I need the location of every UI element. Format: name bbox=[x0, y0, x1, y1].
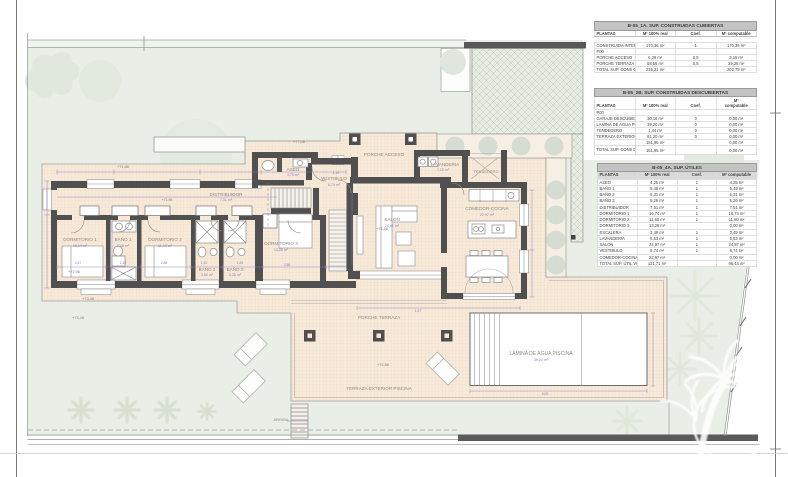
svg-text:BAÑO 1: BAÑO 1 bbox=[115, 236, 132, 242]
svg-text:1,16: 1,16 bbox=[333, 171, 340, 175]
svg-text:PORCHE TERRAZA: PORCHE TERRAZA bbox=[358, 315, 401, 320]
svg-text:3,50 m²: 3,50 m² bbox=[201, 273, 214, 277]
svg-text:DORMITORIO 2: DORMITORIO 2 bbox=[148, 237, 182, 242]
svg-text:1,40: 1,40 bbox=[120, 261, 127, 265]
svg-text:+73,48: +73,48 bbox=[82, 297, 94, 301]
svg-text:+73,48: +73,48 bbox=[72, 316, 84, 320]
svg-text:2,56: 2,56 bbox=[284, 263, 291, 267]
svg-text:22,97 m²: 22,97 m² bbox=[480, 213, 495, 217]
svg-text:7,15 m²: 7,15 m² bbox=[437, 168, 450, 172]
svg-text:SALON: SALON bbox=[384, 217, 400, 222]
svg-text:3,28 m²: 3,28 m² bbox=[229, 273, 242, 277]
svg-text:3,48 m²: 3,48 m² bbox=[117, 244, 130, 248]
svg-text:1,67: 1,67 bbox=[415, 309, 422, 313]
svg-text:+71,88: +71,88 bbox=[117, 165, 129, 169]
svg-text:DISTRIBUIDOR: DISTRIBUIDOR bbox=[210, 192, 244, 197]
svg-text:8,74 m²: 8,74 m² bbox=[328, 183, 341, 187]
svg-text:ASEO: ASEO bbox=[287, 167, 300, 172]
svg-text:ARRIBA: ARRIBA bbox=[274, 417, 289, 422]
svg-text:VESTIBULO: VESTIBULO bbox=[321, 176, 347, 181]
svg-text:PORCHE ACCESO: PORCHE ACCESO bbox=[364, 152, 405, 157]
svg-text:5,00: 5,00 bbox=[542, 392, 549, 396]
svg-text:TERRAZA EXTERIOR PISCINA: TERRAZA EXTERIOR PISCINA bbox=[346, 386, 413, 391]
svg-text:+74,86: +74,86 bbox=[376, 227, 388, 231]
svg-text:TENDEDERO: TENDEDERO bbox=[473, 169, 498, 174]
svg-text:+72,98: +72,98 bbox=[68, 270, 80, 274]
svg-text:LÁMINA DE AGUA PISCINA: LÁMINA DE AGUA PISCINA bbox=[509, 350, 573, 357]
svg-text:COMEDOR-COCINA: COMEDOR-COCINA bbox=[465, 206, 509, 211]
svg-text:2,85: 2,85 bbox=[161, 261, 168, 265]
svg-text:1,83: 1,83 bbox=[237, 261, 244, 265]
svg-text:+74,86: +74,86 bbox=[377, 363, 389, 367]
svg-text:4,75 m²: 4,75 m² bbox=[287, 173, 300, 177]
svg-text:39,20 m²: 39,20 m² bbox=[534, 358, 549, 362]
svg-text:7,51 m²: 7,51 m² bbox=[220, 198, 233, 202]
svg-text:16,14 m²: 16,14 m² bbox=[73, 244, 88, 248]
svg-text:11,48 m²: 11,48 m² bbox=[158, 244, 173, 248]
svg-text:+77,08: +77,08 bbox=[293, 140, 305, 144]
svg-text:2,87: 2,87 bbox=[75, 261, 82, 265]
svg-text:LAVANDERIA: LAVANDERIA bbox=[431, 162, 460, 167]
svg-text:13,26 m²: 13,26 m² bbox=[274, 248, 289, 252]
svg-text:DORMITORIO 1: DORMITORIO 1 bbox=[63, 237, 97, 242]
svg-text:DORMITORIO 3: DORMITORIO 3 bbox=[264, 241, 298, 246]
svg-text:+71,98: +71,98 bbox=[162, 198, 173, 202]
svg-text:1,40: 1,40 bbox=[201, 261, 208, 265]
